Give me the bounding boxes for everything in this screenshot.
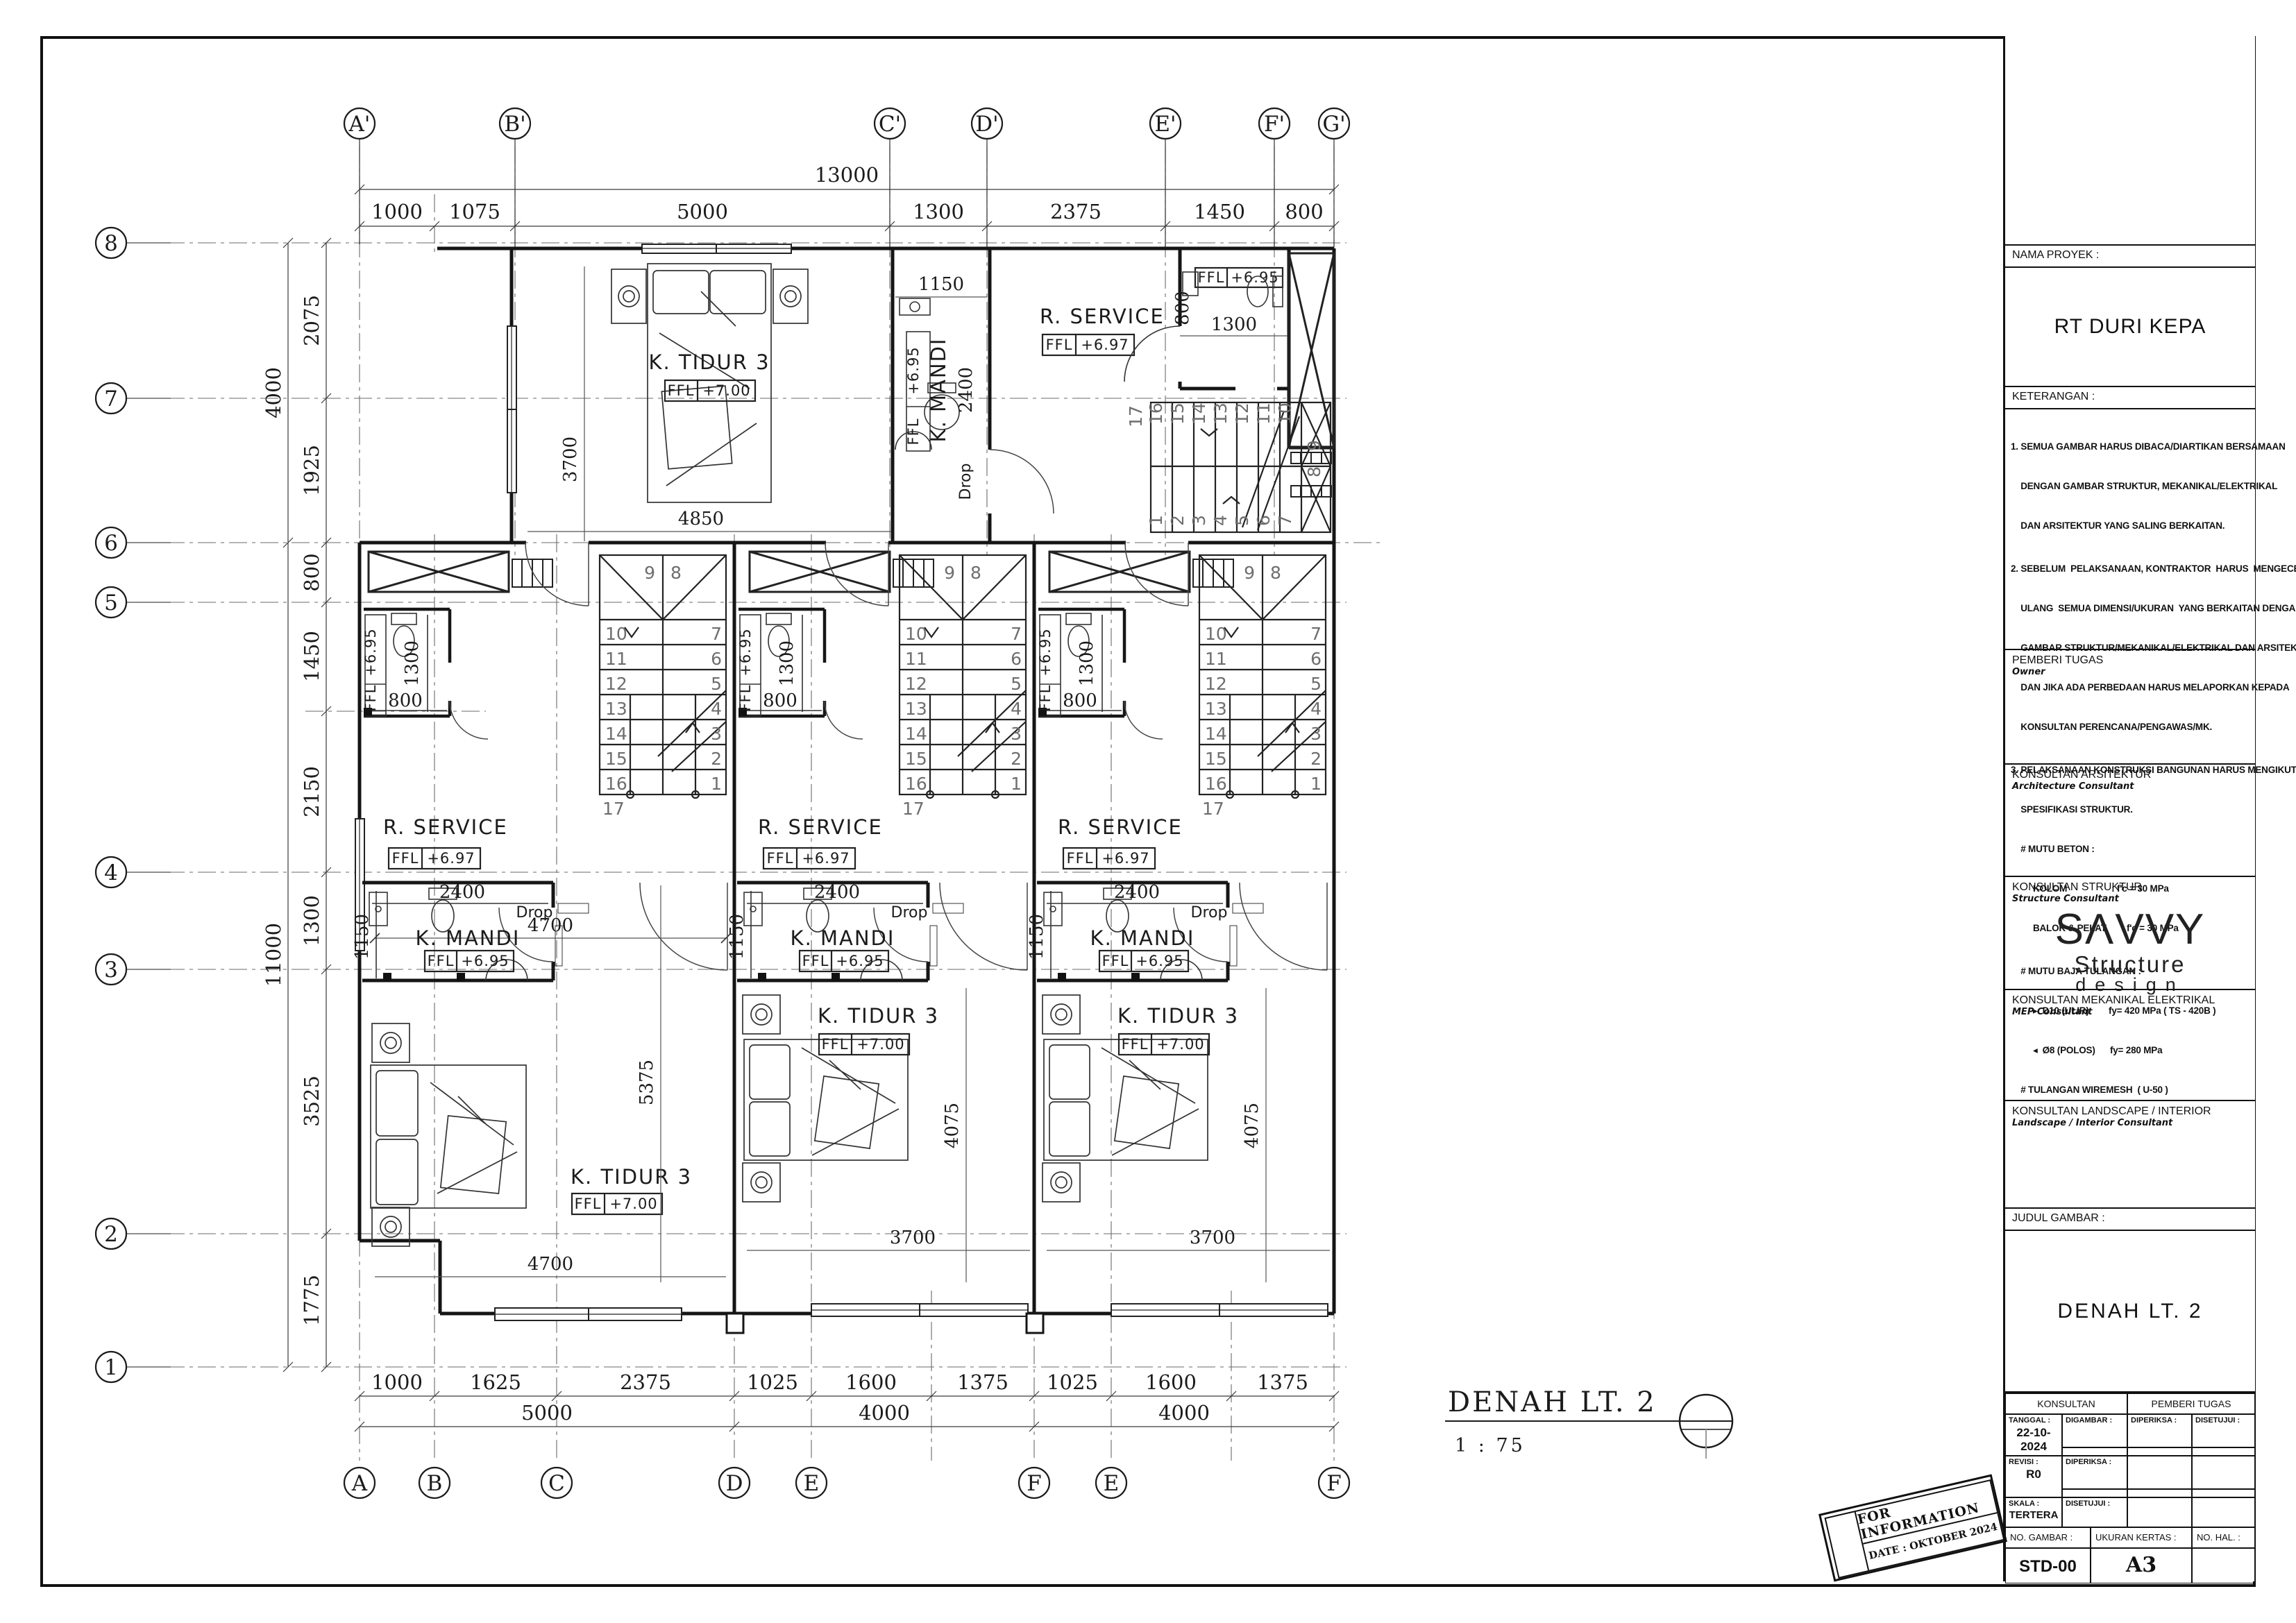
svg-text:E': E' [1154,112,1176,137]
svg-text:E: E [1104,1471,1120,1496]
svg-text:3525: 3525 [300,1076,323,1127]
empty-cell [2192,1456,2255,1489]
svg-text:5000: 5000 [521,1401,573,1425]
svg-text:1000: 1000 [371,1370,423,1394]
title-table: KONSULTAN PEMBERI TUGAS TANGGAL : 22-10-… [2005,1391,2255,1581]
svg-text:2375: 2375 [620,1370,671,1394]
svg-text:2150: 2150 [300,766,323,817]
no-gambar-value: STD-00 [2005,1548,2091,1583]
svg-text:8: 8 [104,231,118,256]
dim-label: 5375 [636,1060,657,1105]
tanggal-value: 22-10-2024 [2006,1426,2061,1454]
svg-text:1600: 1600 [845,1370,897,1394]
ffl-label: FFL [905,418,922,445]
note-line: DENGAN GAMBAR STRUKTUR, MEKANIKAL/ELEKTR… [2011,479,2249,493]
room-label: K. TIDUR 3 [648,350,770,374]
svg-text:1300: 1300 [913,200,964,223]
svg-text:1775: 1775 [300,1275,323,1326]
table-header: PEMBERI TUGAS [2127,1393,2255,1414]
drawing-title: DENAH LT. 2 1 : 75 [1445,1386,1732,1459]
svg-text:1000: 1000 [371,200,423,223]
dim-label: 2400 [956,367,977,413]
dim-label: 3700 [560,436,581,482]
svg-text:5: 5 [104,590,118,615]
grid-lines [167,146,1381,1461]
empty-cell [2192,1497,2255,1527]
svg-text:D': D' [975,112,998,137]
svg-text:1300: 1300 [300,895,323,946]
logo-wordmark: SΛVVY [2005,908,2255,951]
svg-text:2375: 2375 [1050,200,1101,223]
cell-label: REVISI : [2006,1456,2061,1468]
sign-strip [2127,1447,2192,1456]
window-icon [495,1308,682,1320]
nama-proyek-label: NAMA PROYEK : [2005,246,2255,262]
svg-text:1600: 1600 [1145,1370,1197,1394]
floor-plan-svg: 9 8 10 11 12 13 14 15 16 17 7 6 5 4 3 2 … [0,0,2296,1623]
table-header: KONSULTAN [2005,1393,2127,1414]
svg-text:800: 800 [1285,200,1323,223]
drawing-scale: 1 : 75 [1455,1435,1526,1456]
diperiksa2-cell: DIPERIKSA : [2062,1456,2127,1489]
dim-label: 4850 [678,509,724,529]
svg-text:13000: 13000 [815,163,879,187]
bed-icon [371,1023,526,1246]
svg-text:A: A [351,1471,368,1496]
svg-text:2075: 2075 [300,295,323,346]
struktur-cell: KONSULTAN STRUKTUR Structure Consultant … [2005,876,2255,989]
drawing-title-text: DENAH LT. 2 [1448,1386,1657,1418]
nama-proyek-strip: NAMA PROYEK : [2005,244,2255,266]
ffl-value: +6.95 [1231,269,1278,286]
keterangan-label: KETERANGAN : [2005,387,2255,403]
svg-text:800: 800 [300,553,323,591]
cell-label: DIGAMBAR : [2063,1415,2127,1426]
svg-text:5000: 5000 [677,200,728,223]
sign-strip [2062,1489,2127,1497]
svg-text:F': F' [1264,112,1285,137]
svg-text:1375: 1375 [1257,1370,1308,1394]
svg-text:1: 1 [104,1355,118,1380]
project-name-cell: RT DURI KEPA [2005,266,2255,386]
top-unit: K. TIDUR 3 FFL +7.00 3700 4850 1150 +6.9… [507,244,1334,541]
cell-label: DISETUJUI : [2063,1498,2127,1509]
cell-label: TANGGAL : [2006,1415,2061,1426]
judul-strip: JUDUL GAMBAR : [2005,1207,2255,1230]
empty-cell [2127,1456,2192,1489]
ffl-value: +6.97 [1081,337,1129,353]
cell-label: DIPERIKSA : [2063,1456,2127,1468]
dimension-labels: 13000 1000 1075 5000 1300 2375 1450 800 … [262,163,1324,1425]
room-label: K. TIDUR 3 [571,1165,692,1189]
no-gambar-label: NO. GAMBAR : [2005,1527,2091,1548]
svg-text:F: F [1326,1471,1342,1496]
savvy-logo: SΛVVY Structure design [2005,908,2255,994]
svg-text:1075: 1075 [449,200,500,223]
svg-text:1925: 1925 [300,445,323,496]
judul-cell: DENAH LT. 2 [2005,1230,2255,1391]
disetujui-cell: DISETUJUI : [2192,1414,2255,1447]
section-label: PEMBERI TUGAS [2005,650,2255,667]
svg-text:1625: 1625 [470,1370,521,1394]
landscape-cell: KONSULTAN LANDSCAPE / INTERIOR Landscape… [2005,1100,2255,1207]
empty-cell [2127,1497,2192,1527]
room-label: K. MANDI [927,338,950,443]
skala-value: TERTERA [2006,1509,2061,1521]
svg-text:1450: 1450 [300,631,323,682]
arsitektur-cell: KONSULTAN ARSITEKTUR Architecture Consul… [2005,763,2255,876]
disetujui3-cell: DISETUJUI : [2062,1497,2127,1527]
svg-text:4000: 4000 [1158,1401,1210,1425]
cell-label: SKALA : [2006,1498,2061,1509]
section-label: KONSULTAN ARSITEKTUR [2005,765,2255,781]
ukuran-kertas-value: A3 [2091,1548,2192,1583]
revisi-cell: REVISI : R0 [2005,1456,2062,1497]
sign-strip [2192,1489,2255,1497]
keterangan-notes: 1. SEMUA GAMBAR HARUS DIBACA/DIARTIKAN B… [2005,408,2255,649]
section-sublabel: Landscape / Interior Consultant [2005,1118,2255,1128]
bottom-band: K. TIDUR 3 FFL +7.00 5375 4700 [352,882,1330,1333]
cell-label: DIPERIKSA : [2128,1415,2191,1426]
ffl-label: FFL [668,382,695,399]
ukuran-kertas-label: UKURAN KERTAS : [2091,1527,2192,1548]
section-label: KONSULTAN LANDSCAPE / INTERIOR [2005,1101,2255,1118]
svg-text:1025: 1025 [747,1370,798,1394]
drop-label: Drop [957,464,974,500]
cell-label: DISETUJUI : [2193,1415,2254,1426]
svg-text:C': C' [879,112,901,137]
dim-label: 1150 [918,274,964,295]
svg-text:2: 2 [104,1222,118,1247]
dim-label: 4700 [527,1254,573,1275]
section-sublabel: MEP Consultant [2005,1007,2255,1017]
section-label: KONSULTAN MEKANIKAL ELEKTRIKAL [2005,990,2255,1007]
ffl-label: FFL [1046,337,1073,353]
diperiksa-cell: DIPERIKSA : [2127,1414,2192,1447]
dim-label: 1300 [1211,314,1257,335]
ffl-value: +7.00 [609,1196,657,1212]
judul-label: JUDUL GAMBAR : [2005,1209,2255,1225]
svg-text:6: 6 [104,531,118,556]
keterangan-strip: KETERANGAN : [2005,386,2255,408]
section-sublabel: Owner [2005,667,2255,677]
section-label: KONSULTAN STRUKTUR [2005,877,2255,894]
svg-text:B': B' [504,112,525,137]
walls [360,248,1334,1314]
sign-strip [2127,1489,2192,1497]
svg-text:4000: 4000 [262,367,285,418]
svg-text:11000: 11000 [262,923,285,987]
svg-text:7: 7 [104,386,118,411]
ffl-value: +7.00 [702,382,750,399]
tanggal-cell: TANGGAL : 22-10-2024 [2005,1414,2062,1456]
project-name: RT DURI KEPA [2054,315,2206,339]
ffl-label: FFL [1198,269,1225,286]
svg-text:D: D [726,1471,743,1496]
room-label: R. SERVICE [1040,305,1165,328]
ffl-label: FFL [575,1196,602,1212]
svg-text:F: F [1027,1471,1042,1496]
empty-cell [2192,1548,2255,1583]
revisi-value: R0 [2006,1468,2061,1481]
svg-text:A': A' [348,112,371,137]
svg-text:4: 4 [104,860,118,885]
note-line: 2. SEBELUM PELAKSANAAN, KONTRAKTOR HARUS… [2011,562,2249,575]
svg-text:1450: 1450 [1194,200,1245,223]
section-sublabel: Structure Consultant [2005,894,2255,904]
svg-text:4000: 4000 [859,1401,910,1425]
svg-text:1025: 1025 [1047,1370,1098,1394]
drawing-sheet: 9 8 10 11 12 13 14 15 16 17 7 6 5 4 3 2 … [0,0,2296,1623]
svg-text:E: E [804,1471,820,1496]
svg-text:G': G' [1322,112,1345,137]
digambar-cell: DIGAMBAR : [2062,1414,2127,1447]
sign-strip [2192,1447,2255,1456]
judul-text: DENAH LT. 2 [2057,1300,2202,1323]
skala-cell: SKALA : TERTERA [2005,1497,2062,1527]
logo-line2: Structure [2005,953,2255,976]
ffl-value: +6.95 [905,346,922,394]
note-line: 1. SEMUA GAMBAR HARUS DIBACA/DIARTIKAN B… [2011,440,2249,453]
no-hal-label: NO. HAL. : [2192,1527,2255,1548]
sign-strip [2062,1447,2127,1456]
note-line: ULANG SEMUA DIMENSI/UKURAN YANG BERKAITA… [2011,602,2249,615]
mep-cell: KONSULTAN MEKANIKAL ELEKTRIKAL MEP Consu… [2005,989,2255,1100]
svg-text:3: 3 [104,958,118,983]
note-line: DAN ARSITEKTUR YANG SALING BERKAITAN. [2011,519,2249,532]
section-sublabel: Architecture Consultant [2005,781,2255,792]
title-block: NAMA PROYEK : RT DURI KEPA KETERANGAN : … [2003,36,2255,1581]
svg-text:1375: 1375 [957,1370,1008,1394]
svg-text:B: B [427,1471,443,1496]
pemberi-tugas-cell: PEMBERI TUGAS Owner [2005,649,2255,763]
svg-text:C: C [548,1471,565,1496]
